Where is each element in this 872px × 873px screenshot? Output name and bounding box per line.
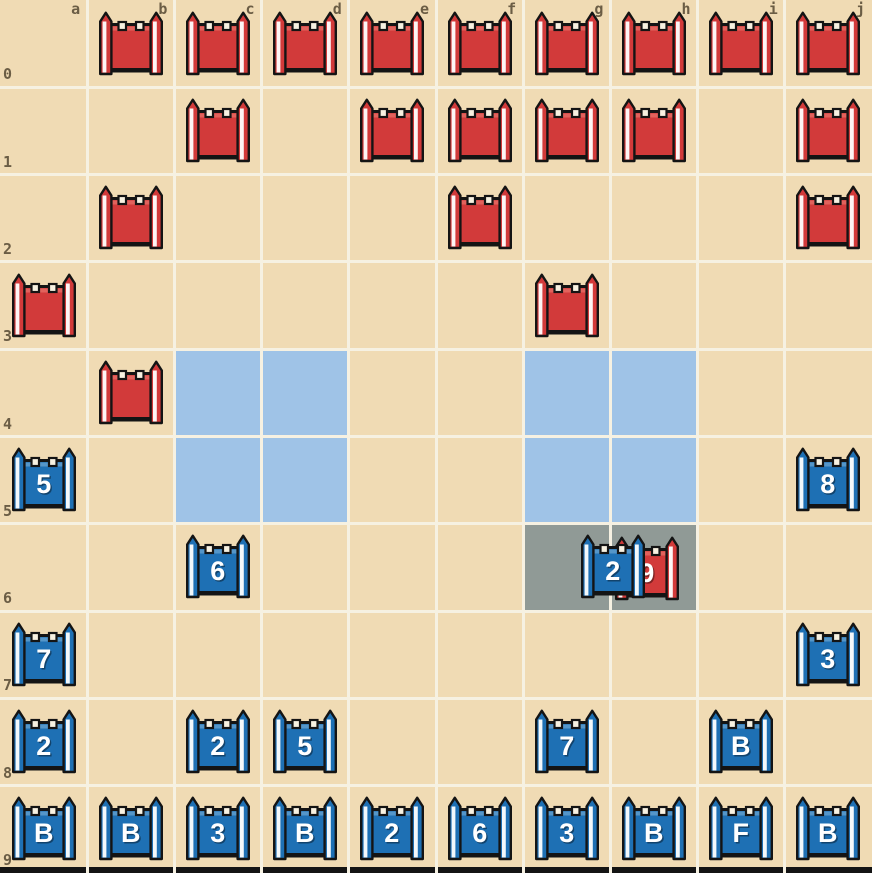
cell-c2[interactable]: [174, 175, 261, 262]
castle-icon: [533, 11, 601, 77]
castle-icon: 22: [579, 534, 647, 600]
piece-rank-label: 5: [36, 469, 51, 499]
cell-e5[interactable]: [349, 437, 436, 524]
cell-d2[interactable]: [262, 175, 349, 262]
castle-icon: 33: [184, 796, 252, 862]
piece-red-c1[interactable]: [184, 98, 252, 164]
cell-j6[interactable]: [785, 524, 872, 611]
cell-f3[interactable]: [436, 262, 523, 349]
column-label-a: a: [0, 2, 80, 17]
cell-g2[interactable]: [523, 175, 610, 262]
cell-d1[interactable]: [262, 87, 349, 174]
piece-blue-a5[interactable]: 55: [10, 447, 78, 513]
cell-h2[interactable]: [610, 175, 697, 262]
piece-red-f0[interactable]: [446, 11, 514, 77]
lake-cell-d4: [262, 349, 349, 436]
grid-line-vertical: [609, 0, 612, 873]
castle-icon: [10, 273, 78, 339]
cell-i2[interactable]: [698, 175, 785, 262]
cell-b8[interactable]: [87, 698, 174, 785]
piece-rank-label: F: [733, 819, 750, 849]
piece-rank-label: 3: [210, 819, 225, 849]
piece-rank-label: 8: [821, 469, 836, 499]
lake-cell-d5: [262, 437, 349, 524]
castle-icon: BB: [620, 796, 688, 862]
piece-red-i0[interactable]: [707, 11, 775, 77]
piece-rank-label: 5: [297, 731, 312, 761]
castle-icon: [794, 98, 862, 164]
piece-blue-a9[interactable]: BB: [10, 796, 78, 862]
piece-red-d0[interactable]: [271, 11, 339, 77]
board-bottom-edge: [262, 867, 349, 873]
grid-line-vertical: [783, 0, 786, 873]
castle-icon: 66: [184, 534, 252, 600]
castle-icon: FF: [707, 796, 775, 862]
piece-rank-label: 2: [385, 819, 400, 849]
castle-icon: [97, 185, 165, 251]
piece-red-j2[interactable]: [794, 185, 862, 251]
cell-i6[interactable]: [698, 524, 785, 611]
cell-a2[interactable]: [0, 175, 87, 262]
piece-red-g3[interactable]: [533, 273, 601, 339]
castle-icon: [184, 11, 252, 77]
cell-e4[interactable]: [349, 349, 436, 436]
piece-blue-j9[interactable]: BB: [794, 796, 862, 862]
piece-red-h0[interactable]: [620, 11, 688, 77]
cell-e3[interactable]: [349, 262, 436, 349]
castle-icon: BB: [794, 796, 862, 862]
grid-line-horizontal: [0, 610, 872, 613]
castle-icon: 22: [184, 709, 252, 775]
castle-icon: [620, 11, 688, 77]
piece-red-f1[interactable]: [446, 98, 514, 164]
castle-icon: BB: [707, 709, 775, 775]
piece-blue-c8[interactable]: 22: [184, 709, 252, 775]
cell-b3[interactable]: [87, 262, 174, 349]
grid-line-horizontal: [0, 697, 872, 700]
lake-cell-c5: [174, 437, 261, 524]
piece-rank-label: 6: [472, 819, 487, 849]
lake-cell-c4: [174, 349, 261, 436]
board-bottom-edge: [523, 867, 610, 873]
piece-rank-label: 7: [559, 731, 574, 761]
piece-red-e0[interactable]: [358, 11, 426, 77]
castle-icon: 77: [533, 709, 601, 775]
piece-red-g1[interactable]: [533, 98, 601, 164]
piece-blue-h9[interactable]: BB: [620, 796, 688, 862]
cell-j8[interactable]: [785, 698, 872, 785]
castle-icon: 88: [794, 447, 862, 513]
grid-line-vertical: [696, 0, 699, 873]
castle-icon: [184, 98, 252, 164]
cell-c3[interactable]: [174, 262, 261, 349]
board-bottom-edge: [785, 867, 872, 873]
cell-e7[interactable]: [349, 611, 436, 698]
castle-icon: [533, 273, 601, 339]
cell-c7[interactable]: [174, 611, 261, 698]
cell-a6[interactable]: [0, 524, 87, 611]
cell-b7[interactable]: [87, 611, 174, 698]
piece-rank-label: 2: [36, 731, 51, 761]
cell-b6[interactable]: [87, 524, 174, 611]
game-board: abcdefghij012345678955886699227733222255…: [0, 0, 872, 873]
piece-blue-a8[interactable]: 22: [10, 709, 78, 775]
cell-i3[interactable]: [698, 262, 785, 349]
castle-icon: 77: [10, 622, 78, 688]
cell-f5[interactable]: [436, 437, 523, 524]
cell-i1[interactable]: [698, 87, 785, 174]
row-label-2: 2: [3, 242, 12, 257]
castle-icon: BB: [10, 796, 78, 862]
board-bottom-edge: [349, 867, 436, 873]
castle-icon: BB: [97, 796, 165, 862]
cell-h8[interactable]: [610, 698, 697, 785]
cell-f7[interactable]: [436, 611, 523, 698]
piece-rank-label: 3: [821, 644, 836, 674]
lake-cell-h4: [610, 349, 697, 436]
castle-icon: [794, 11, 862, 77]
piece-blue-d9[interactable]: BB: [271, 796, 339, 862]
cell-f8[interactable]: [436, 698, 523, 785]
piece-red-c0[interactable]: [184, 11, 252, 77]
castle-icon: 55: [271, 709, 339, 775]
cell-g7[interactable]: [523, 611, 610, 698]
lake-cell-g5: [523, 437, 610, 524]
piece-blue-c9[interactable]: 33: [184, 796, 252, 862]
piece-blue-g9[interactable]: 33: [533, 796, 601, 862]
cell-h3[interactable]: [610, 262, 697, 349]
row-label-0: 0: [3, 67, 12, 82]
castle-icon: 22: [10, 709, 78, 775]
cell-a1[interactable]: [0, 87, 87, 174]
cell-i5[interactable]: [698, 437, 785, 524]
piece-blue-g8[interactable]: 77: [533, 709, 601, 775]
cell-e2[interactable]: [349, 175, 436, 262]
piece-red-b0[interactable]: [97, 11, 165, 77]
cell-d6[interactable]: [262, 524, 349, 611]
grid-line-horizontal: [0, 435, 872, 438]
piece-blue-c6[interactable]: 66: [184, 534, 252, 600]
piece-rank-label: 2: [210, 731, 225, 761]
castle-icon: [358, 11, 426, 77]
piece-red-g0[interactable]: [533, 11, 601, 77]
piece-blue-a7[interactable]: 77: [10, 622, 78, 688]
cell-b5[interactable]: [87, 437, 174, 524]
board-bottom-edge: [436, 867, 523, 873]
piece-blue-j5[interactable]: 88: [794, 447, 862, 513]
piece-rank-label: B: [34, 819, 54, 849]
board-bottom-edge: [698, 867, 785, 873]
board-bottom-edge: [174, 867, 261, 873]
castle-icon: [358, 98, 426, 164]
castle-icon: 55: [10, 447, 78, 513]
castle-icon: 33: [794, 622, 862, 688]
board-bottom-edge: [87, 867, 174, 873]
castle-icon: [533, 98, 601, 164]
piece-rank-label: B: [818, 819, 838, 849]
cell-f6[interactable]: [436, 524, 523, 611]
cell-e6[interactable]: [349, 524, 436, 611]
grid-line-vertical: [522, 0, 525, 873]
piece-red-j1[interactable]: [794, 98, 862, 164]
castle-icon: [97, 360, 165, 426]
piece-blue-g6[interactable]: 22: [579, 534, 647, 600]
cell-e8[interactable]: [349, 698, 436, 785]
piece-red-j0[interactable]: [794, 11, 862, 77]
piece-rank-label: B: [644, 819, 664, 849]
cell-d7[interactable]: [262, 611, 349, 698]
piece-rank-label: B: [295, 819, 315, 849]
piece-blue-b9[interactable]: BB: [97, 796, 165, 862]
piece-red-e1[interactable]: [358, 98, 426, 164]
castle-icon: [271, 11, 339, 77]
castle-icon: [794, 185, 862, 251]
board-bottom-edge: [610, 867, 697, 873]
castle-icon: 22: [358, 796, 426, 862]
piece-blue-i9[interactable]: FF: [707, 796, 775, 862]
castle-icon: [620, 98, 688, 164]
cell-i4[interactable]: [698, 349, 785, 436]
piece-red-b4[interactable]: [97, 360, 165, 426]
castle-icon: [97, 11, 165, 77]
cell-b1[interactable]: [87, 87, 174, 174]
piece-rank-label: 6: [210, 557, 225, 587]
grid-line-horizontal: [0, 522, 872, 525]
cell-d3[interactable]: [262, 262, 349, 349]
row-label-1: 1: [3, 155, 12, 170]
cell-i7[interactable]: [698, 611, 785, 698]
castle-icon: [446, 98, 514, 164]
piece-red-a3[interactable]: [10, 273, 78, 339]
cell-f4[interactable]: [436, 349, 523, 436]
castle-icon: 33: [533, 796, 601, 862]
piece-rank-label: 2: [605, 557, 620, 587]
piece-blue-d8[interactable]: 55: [271, 709, 339, 775]
piece-blue-j7[interactable]: 33: [794, 622, 862, 688]
castle-icon: [707, 11, 775, 77]
piece-rank-label: 3: [559, 819, 574, 849]
piece-rank-label: 7: [36, 644, 51, 674]
piece-blue-f9[interactable]: 66: [446, 796, 514, 862]
piece-rank-label: B: [731, 731, 751, 761]
row-label-4: 4: [3, 417, 12, 432]
piece-red-f2[interactable]: [446, 185, 514, 251]
castle-icon: [446, 185, 514, 251]
lake-cell-g4: [523, 349, 610, 436]
castle-icon: [446, 11, 514, 77]
board-bottom-edge: [0, 867, 87, 873]
cell-j4[interactable]: [785, 349, 872, 436]
cell-j3[interactable]: [785, 262, 872, 349]
piece-rank-label: B: [121, 819, 141, 849]
castle-icon: 66: [446, 796, 514, 862]
piece-blue-e9[interactable]: 22: [358, 796, 426, 862]
piece-blue-i8[interactable]: BB: [707, 709, 775, 775]
castle-icon: BB: [271, 796, 339, 862]
piece-red-b2[interactable]: [97, 185, 165, 251]
piece-red-h1[interactable]: [620, 98, 688, 164]
cell-h7[interactable]: [610, 611, 697, 698]
grid-line-horizontal: [0, 784, 872, 787]
cell-a4[interactable]: [0, 349, 87, 436]
row-label-6: 6: [3, 591, 12, 606]
lake-cell-h5: [610, 437, 697, 524]
